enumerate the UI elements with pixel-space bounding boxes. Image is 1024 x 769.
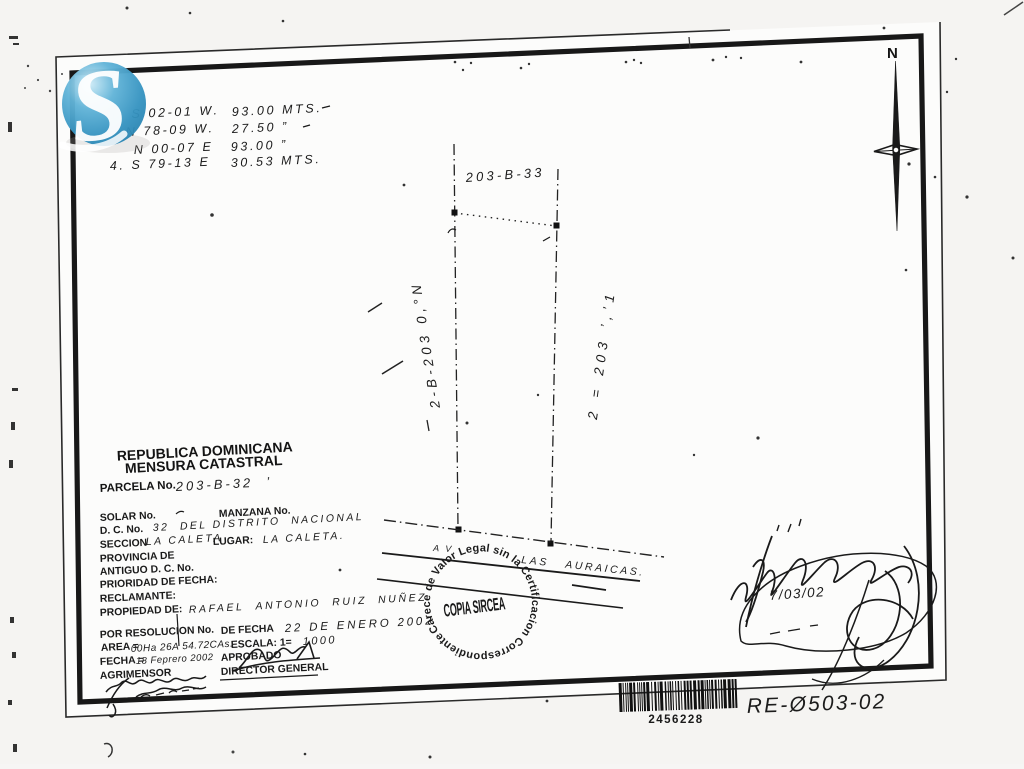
svg-text:D. C. No.: D. C. No. (100, 524, 144, 537)
svg-text:N: N (887, 45, 898, 62)
svg-text:93.00 ”: 93.00 ” (231, 138, 289, 154)
svg-text:27.50 ”: 27.50 ” (231, 120, 290, 137)
svg-text:2456228: 2456228 (648, 714, 703, 726)
svg-text:1000: 1000 (303, 634, 338, 648)
svg-text:SECCION: SECCION (100, 538, 148, 551)
svg-text:RE-Ø503-02: RE-Ø503-02 (746, 690, 887, 718)
